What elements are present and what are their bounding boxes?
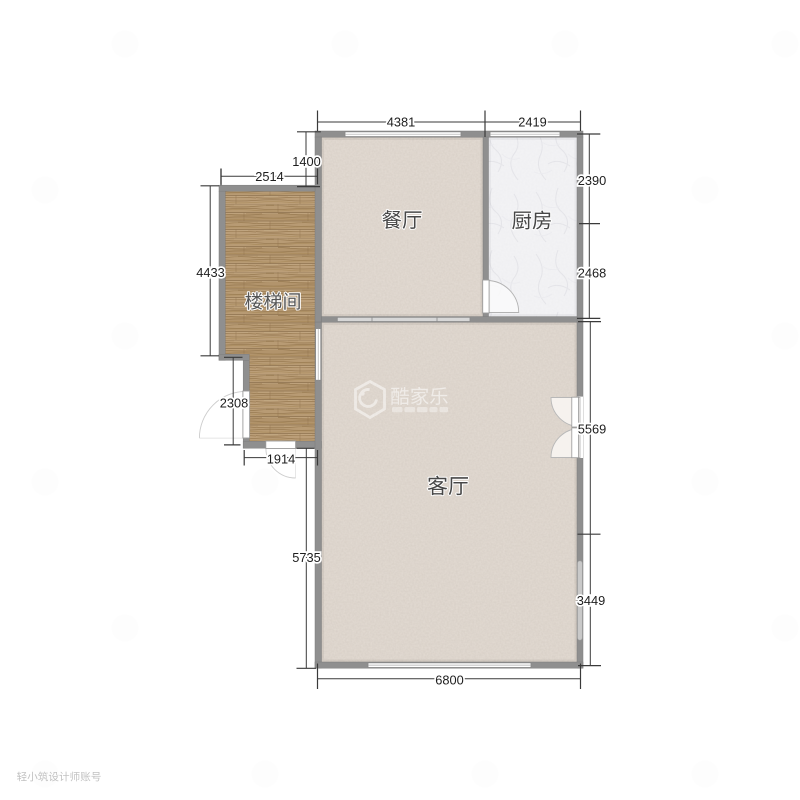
svg-text:2308: 2308 <box>220 396 248 411</box>
svg-text:3449: 3449 <box>577 593 605 608</box>
svg-text:5569: 5569 <box>578 422 606 437</box>
svg-text:1400: 1400 <box>292 154 320 169</box>
svg-text:2390: 2390 <box>578 173 606 188</box>
svg-text:2419: 2419 <box>518 115 546 130</box>
svg-text:4433: 4433 <box>196 265 224 280</box>
svg-text:4381: 4381 <box>387 115 415 130</box>
svg-text:5735: 5735 <box>292 550 320 565</box>
svg-text:2468: 2468 <box>578 266 606 281</box>
svg-text:2514: 2514 <box>255 169 283 184</box>
svg-text:6800: 6800 <box>435 673 463 688</box>
svg-text:1914: 1914 <box>267 451 295 466</box>
